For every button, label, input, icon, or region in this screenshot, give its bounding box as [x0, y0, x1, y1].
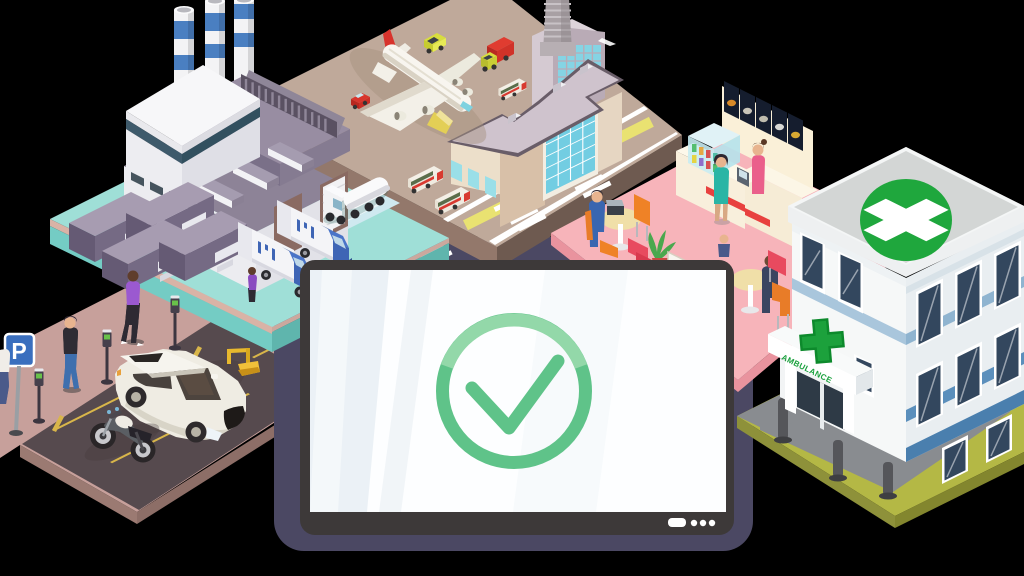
svg-text:P: P	[11, 338, 26, 364]
